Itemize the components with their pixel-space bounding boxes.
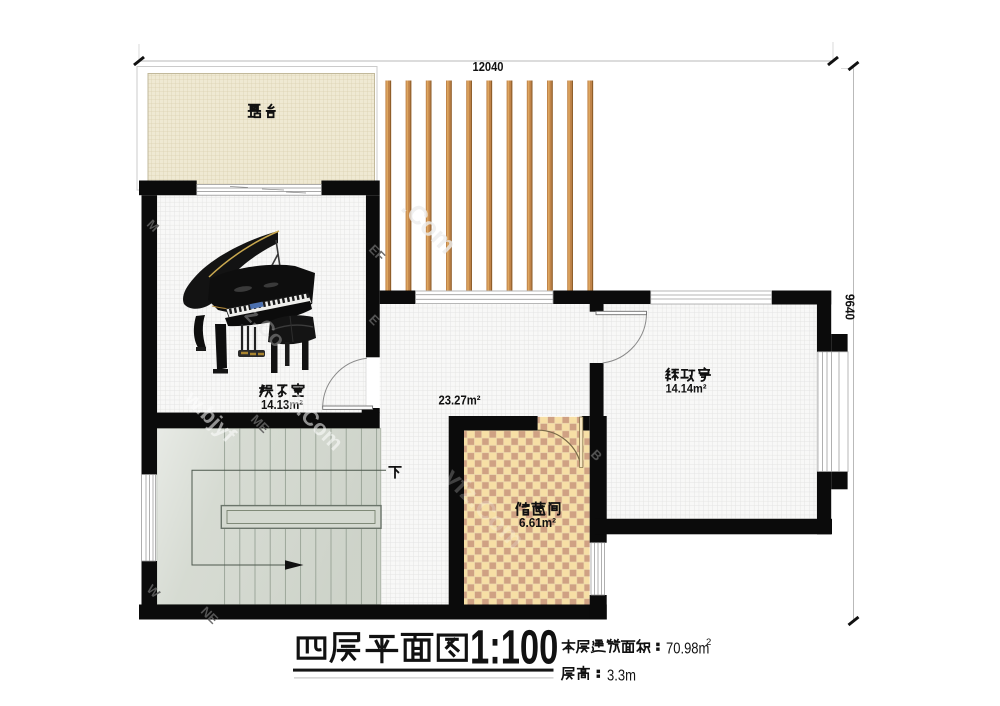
svg-text:1:100: 1:100 [470, 620, 558, 674]
svg-text:70.98m: 70.98m [666, 641, 709, 658]
svg-text:2: 2 [706, 637, 711, 648]
svg-text:3.3m: 3.3m [607, 668, 636, 685]
svg-text:9640: 9640 [843, 294, 858, 320]
svg-text:23.27m²: 23.27m² [439, 394, 481, 408]
svg-text:12040: 12040 [473, 59, 504, 74]
svg-text:14.14m²: 14.14m² [666, 382, 707, 396]
